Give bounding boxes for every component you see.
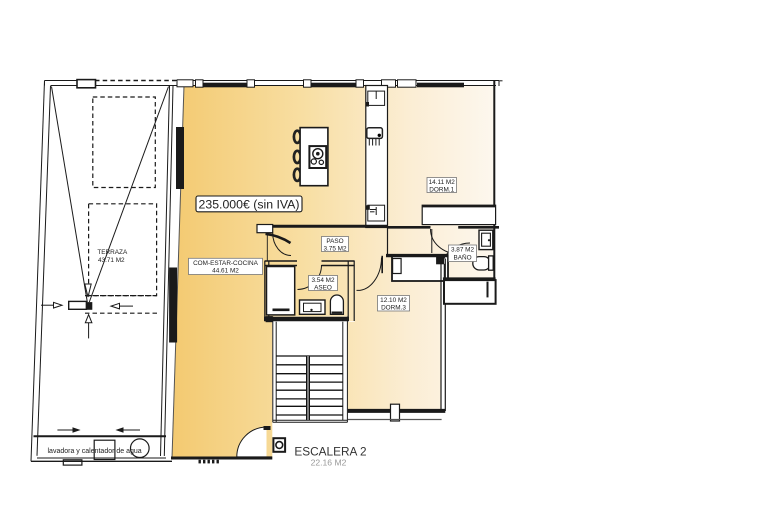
svg-text:22.16 M2: 22.16 M2 [311, 458, 347, 468]
svg-text:DORM.3: DORM.3 [381, 305, 406, 312]
svg-text:COM-ESTAR-COCINA: COM-ESTAR-COCINA [193, 260, 259, 267]
svg-text:3.87 M2: 3.87 M2 [451, 247, 475, 254]
svg-text:3.54 M2: 3.54 M2 [311, 277, 335, 284]
svg-text:BAÑO: BAÑO [453, 253, 471, 262]
svg-text:ASEO: ASEO [314, 284, 332, 291]
svg-text:3.75 M2: 3.75 M2 [323, 245, 347, 252]
svg-text:lavadora y calentador de agua: lavadora y calentador de agua [48, 448, 142, 455]
svg-text:TERRAZA: TERRAZA [97, 249, 128, 256]
svg-text:44.61 M2: 44.61 M2 [212, 268, 239, 275]
svg-text:ESCALERA 2: ESCALERA 2 [294, 445, 366, 459]
svg-text:DORM.1: DORM.1 [429, 186, 454, 193]
svg-text:12.10 M2: 12.10 M2 [380, 297, 407, 304]
svg-text:14.11 M2: 14.11 M2 [429, 179, 456, 186]
svg-text:43.71 M2: 43.71 M2 [98, 257, 125, 264]
svg-text:PASO: PASO [326, 238, 343, 245]
svg-text:235.000€ (sin IVA): 235.000€ (sin IVA) [199, 197, 300, 211]
